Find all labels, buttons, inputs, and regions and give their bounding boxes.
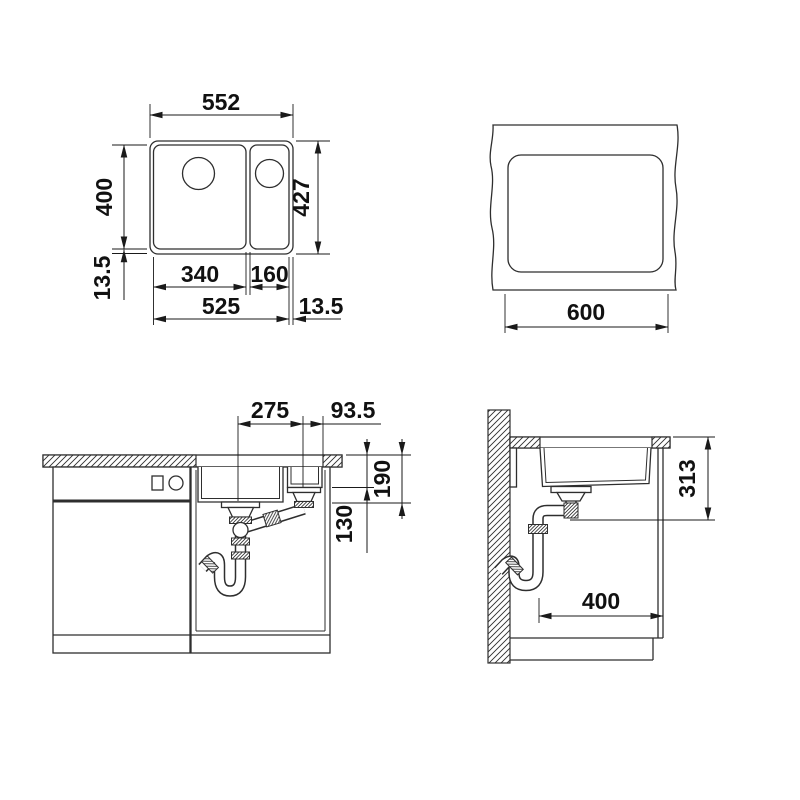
view-cutout: 600	[490, 125, 678, 333]
dim-overall-width: 552	[150, 89, 293, 138]
dim-label-cutout-width: 600	[567, 299, 605, 325]
drawing-page: 552 400 13.5 427 340	[0, 0, 800, 800]
side-drain-strainer	[551, 487, 591, 502]
countertop-hatch-right	[323, 455, 342, 467]
pipe-coupling	[232, 538, 250, 545]
dim-label-outlet-height: 313	[674, 459, 700, 497]
dim-label-bowl-length: 400	[91, 178, 117, 216]
dim-cutout-width: 600	[505, 294, 668, 333]
sink-technical-drawing: 552 400 13.5 427 340	[0, 0, 800, 800]
dim-drain-to-edge: 93.5	[303, 397, 381, 424]
view-side: 313 400	[488, 410, 715, 663]
dim-bowl-length: 400	[91, 145, 147, 249]
dim-label-rim-left: 13.5	[89, 255, 115, 300]
countertop-hatch-left	[43, 455, 196, 467]
dim-label-drain-spacing: 275	[251, 397, 290, 423]
dim-label-main-bowl-depth: 190	[369, 460, 395, 498]
dim-label-drain-to-edge: 93.5	[331, 397, 376, 423]
view-front: 275 93.5 190 130	[43, 397, 411, 653]
dim-label-overall-length: 427	[288, 178, 314, 216]
dim-label-half-bowl-width: 160	[250, 261, 288, 287]
pipe-coupling	[564, 503, 578, 518]
dim-half-bowl-width: 160	[250, 252, 289, 325]
dim-label-rim-right: 13.5	[299, 293, 344, 319]
main-bowl-plan	[154, 145, 247, 249]
pipe-coupling	[529, 525, 548, 534]
view-plan: 552 400 13.5 427 340	[89, 89, 344, 325]
dim-label-main-bowl-width: 340	[181, 261, 219, 287]
dim-overall-length: 427	[288, 141, 330, 254]
dim-bowls-span: 525	[154, 293, 290, 319]
dim-label-half-bowl-depth: 130	[331, 505, 357, 543]
countertop-hatch-front	[652, 437, 670, 448]
half-bowl-plan	[250, 145, 289, 249]
wall-batten	[510, 448, 517, 487]
cutout-outline	[508, 155, 663, 272]
dim-clearance-depth: 400	[539, 588, 663, 623]
dim-rim-left: 13.5	[89, 250, 147, 301]
dim-label-clearance-depth: 400	[582, 588, 620, 614]
pipe-coupling	[232, 552, 250, 559]
drain-tee-joint	[233, 523, 248, 538]
appliance-cabinet	[53, 467, 190, 653]
main-bowl-front	[198, 467, 283, 502]
dim-drain-spacing: 275	[238, 397, 303, 424]
dim-rim-right: 13.5	[293, 257, 344, 325]
dim-label-overall-width: 552	[202, 89, 240, 115]
dim-label-bowls-span: 525	[202, 293, 241, 319]
countertop-hatch-back	[510, 437, 540, 448]
wall-section	[488, 410, 510, 663]
